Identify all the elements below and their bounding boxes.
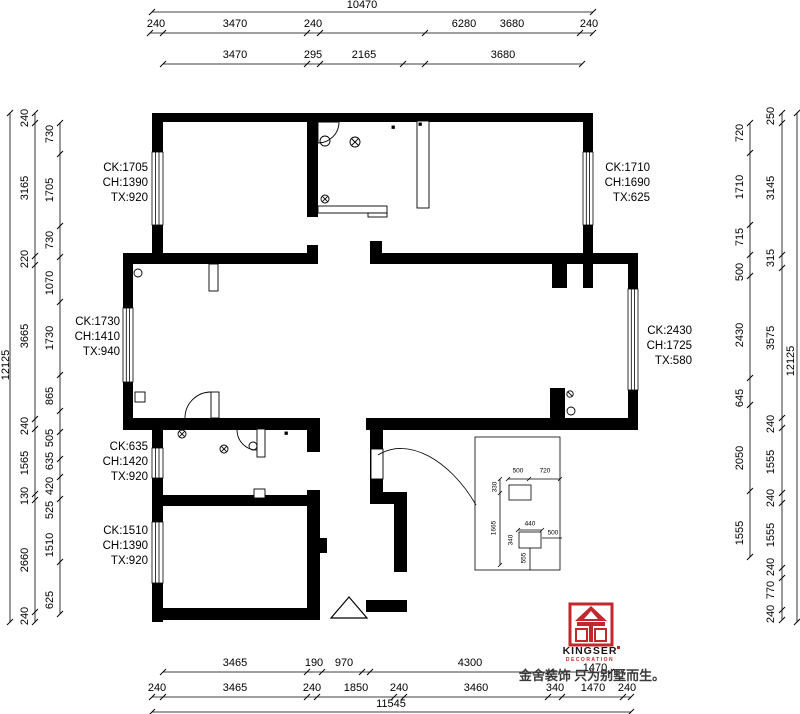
- detail-box: [475, 437, 562, 570]
- window-note-ch: CH:1690: [560, 176, 650, 191]
- dim-label: 240: [19, 607, 31, 625]
- dim-label: 505: [44, 429, 56, 447]
- dim-label: 1510: [44, 533, 56, 557]
- dim-label: 420: [44, 477, 56, 495]
- window-note-ch: CH:1725: [610, 339, 692, 354]
- dim-label: 315: [765, 249, 777, 267]
- window-note-left-top: CK:1705 CH:1390 TX:920: [58, 161, 148, 206]
- dim-label: 295: [304, 49, 322, 61]
- window-note-ch: CH:1390: [58, 539, 148, 554]
- dim-label: 715: [734, 228, 746, 246]
- dim-label: 3680: [491, 49, 515, 61]
- dim-label: 3470: [223, 18, 247, 30]
- dim-label: 720: [734, 124, 746, 142]
- window-note-ch: CH:1420: [58, 455, 148, 470]
- door-leaf: [257, 429, 265, 457]
- door-marker: [254, 489, 265, 498]
- dim-label: 240: [19, 417, 31, 435]
- dim-label: 1555: [734, 521, 746, 545]
- logo-division: DECORATION: [558, 657, 622, 663]
- entrance-triangle: [331, 597, 367, 618]
- dim-label: 970: [335, 657, 353, 669]
- window-note-ck: CK:1730: [38, 315, 120, 330]
- dim-label: 3575: [765, 326, 777, 350]
- dim-label: 1070: [44, 271, 56, 295]
- detail-dim-label: 330: [492, 482, 499, 493]
- window-note-tx: TX:940: [38, 345, 120, 360]
- dim-label: 865: [44, 387, 56, 405]
- dim-label: 3465: [223, 682, 247, 694]
- window-note-ck: CK:1705: [58, 161, 148, 176]
- detail-dim-label: 440: [525, 521, 536, 528]
- window-note-left-middle: CK:1730 CH:1410 TX:940: [38, 315, 120, 360]
- kingser-logo-icon: [570, 604, 612, 645]
- window-note-ck: CK:635: [58, 440, 148, 455]
- window-note-ch: CH:1410: [38, 330, 120, 345]
- dim-label: 730: [44, 125, 56, 143]
- window-note-tx: TX:625: [560, 191, 650, 206]
- detail-dim-label: 500: [548, 530, 559, 537]
- detail-dim-label: 500: [513, 468, 524, 475]
- dim-label: 525: [44, 501, 56, 519]
- counter: [318, 206, 387, 213]
- dim-label: 3470: [223, 49, 247, 61]
- dim-label: 240: [19, 109, 31, 127]
- dim-label: 2050: [734, 446, 746, 470]
- dim-label: 240: [147, 18, 165, 30]
- window-note-ck: CK:1710: [560, 161, 650, 176]
- window-note-tx: TX:920: [58, 191, 148, 206]
- dim-label: 240: [765, 558, 777, 576]
- window-note-left-bottom: CK:1510 CH:1390 TX:920: [58, 524, 148, 569]
- dim-label: 240: [765, 489, 777, 507]
- dim-label: 220: [19, 250, 31, 268]
- dim-label: 240: [304, 18, 322, 30]
- dim-label: 3460: [464, 682, 488, 694]
- door-leaf: [211, 392, 219, 418]
- dim-label: 3465: [223, 657, 247, 669]
- cabinet: [209, 264, 218, 291]
- dim-label: 12125: [785, 346, 797, 377]
- dim-label: 240: [148, 682, 166, 694]
- window-note-right-middle: CK:2430 CH:1725 TX:580: [610, 324, 692, 369]
- door-arc: [185, 392, 211, 418]
- dim-label: 10470: [347, 0, 378, 11]
- window-note-ck: CK:2430: [610, 324, 692, 339]
- dim-label: 3665: [19, 324, 31, 348]
- dim-label: 730: [44, 231, 56, 249]
- fixture-symbols: [134, 123, 575, 453]
- dim-label: 1565: [19, 451, 31, 475]
- window-note-ch: CH:1390: [58, 176, 148, 191]
- partition: [417, 121, 429, 208]
- window-note-tx: TX:580: [610, 354, 692, 369]
- dim-label: 1850: [344, 682, 368, 694]
- door-arc: [237, 430, 257, 450]
- dim-label: 2660: [19, 548, 31, 572]
- logo-brand-name: KINGSER: [558, 645, 622, 657]
- dim-label: 130: [19, 487, 31, 505]
- window-note-tx: TX:920: [58, 554, 148, 569]
- detail-dim-label: 555: [521, 553, 528, 564]
- dim-label: 240: [765, 415, 777, 433]
- floor-plan-canvas: 10470 240 3470 240 6280 3680 240 3470 29…: [0, 0, 800, 714]
- window-note-left-lower: CK:635 CH:1420 TX:920: [58, 440, 148, 485]
- dim-label: 11545: [376, 698, 406, 710]
- door-swing: [318, 122, 339, 143]
- dim-label: 635: [44, 452, 56, 470]
- counter-step: [368, 213, 387, 217]
- dim-label: 190: [305, 657, 323, 669]
- dim-label: 240: [765, 605, 777, 623]
- dim-label: 1555: [765, 450, 777, 474]
- dim-label: 3680: [500, 18, 524, 30]
- trademark-icon: [617, 646, 620, 649]
- doors-and-furniture: [135, 121, 476, 505]
- dim-label: 3145: [765, 176, 777, 200]
- dim-label: 240: [580, 18, 598, 30]
- dim-label: 2430: [734, 323, 746, 347]
- detail-dim-label: 1665: [491, 521, 498, 535]
- dim-label: 770: [765, 581, 777, 599]
- window-note-tx: TX:920: [58, 470, 148, 485]
- dim-label: 625: [44, 591, 56, 609]
- dim-label: 645: [734, 389, 746, 407]
- detail-dim-label: 720: [540, 468, 551, 475]
- dim-label: 240: [303, 682, 321, 694]
- appliance: [135, 392, 145, 402]
- window-note-right-top: CK:1710 CH:1690 TX:625: [560, 161, 650, 206]
- dim-label: 6280: [452, 18, 476, 30]
- dim-label: 1710: [734, 175, 746, 199]
- detail-dim-label: 340: [508, 535, 515, 546]
- dim-label: 240: [390, 682, 408, 694]
- dim-label: 3165: [19, 176, 31, 200]
- window-note-ck: CK:1510: [58, 524, 148, 539]
- dim-label: 2165: [352, 49, 376, 61]
- dim-label: 250: [765, 107, 777, 125]
- dim-label: 1555: [765, 523, 777, 547]
- dim-label: 12125: [0, 350, 12, 381]
- dim-label: 500: [734, 263, 746, 281]
- dim-label: 1705: [44, 178, 56, 202]
- logo-slogan: 金舍装饰 只为别墅而生。: [508, 665, 676, 684]
- dim-label: 4300: [458, 657, 482, 669]
